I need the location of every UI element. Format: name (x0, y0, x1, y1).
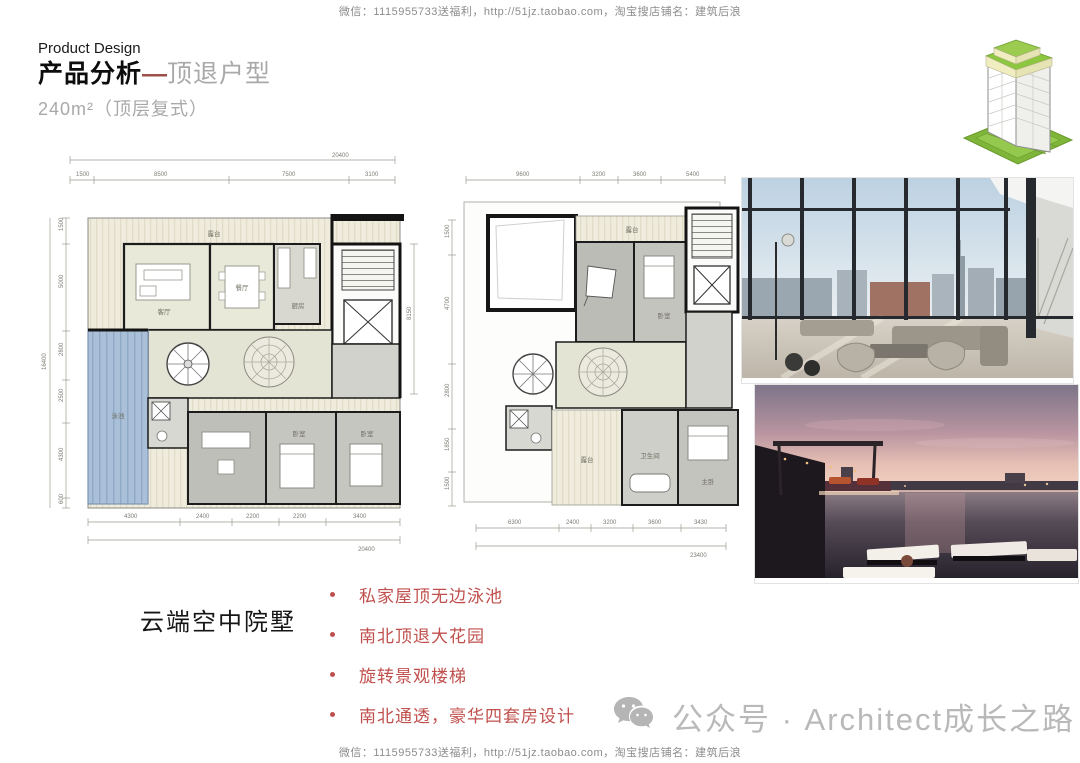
terrace-bottom: 露台 (552, 410, 622, 505)
hallway (332, 344, 400, 398)
svg-text:5400: 5400 (686, 172, 700, 178)
svg-text:1500: 1500 (76, 172, 90, 178)
feature-text: 南北通透，豪华四套房设计 (359, 702, 575, 727)
svg-text:4300: 4300 (124, 514, 138, 520)
svg-text:16400: 16400 (42, 353, 48, 370)
cloud (915, 438, 1075, 448)
svg-text:9600: 9600 (516, 172, 530, 178)
top-watermark: 微信：1115955733送福利，http://51jz.taobao.com，… (0, 3, 1080, 19)
svg-text:7500: 7500 (282, 172, 296, 178)
svg-text:2500: 2500 (59, 388, 65, 402)
plan-body: 露台 卧室 (464, 202, 738, 505)
title-sub: 顶退户型 (167, 60, 271, 88)
bedroom-upper: 卧室 (634, 242, 692, 342)
sky-reflection (905, 493, 965, 553)
dim-bottom: 6300 2400 3200 3600 3430 23400 (476, 520, 726, 559)
bedroom-b: 卧室 (336, 412, 400, 504)
penthouse-interior-photo (742, 178, 1073, 383)
floor-plan-lower: 20400 1500 8500 7500 3100 16400 1500 (36, 148, 428, 565)
floor-plan-upper: 9600 3200 3600 5400 1500 4700 2800 1850 … (436, 160, 746, 570)
feature-item: 南北通透，豪华四套房设计 (330, 702, 575, 727)
slide: 微信：1115955733送福利，http://51jz.taobao.com，… (0, 0, 1080, 763)
svg-text:卧室: 卧室 (293, 429, 307, 438)
cloud (805, 419, 945, 431)
bathroom (148, 398, 188, 448)
eyebrow-title: Product Design (38, 40, 271, 57)
svg-text:露台: 露台 (208, 229, 221, 238)
living-room: 客厅 (124, 244, 210, 330)
svg-text:1500: 1500 (445, 224, 451, 238)
dim-top: 20400 1500 8500 7500 3100 (70, 153, 395, 184)
dim-left: 16400 1500 5000 2800 2500 4300 600 (42, 217, 70, 508)
plan-body: 露台 客厅 餐厅 (88, 214, 404, 508)
building-3d-icon (958, 26, 1076, 183)
svg-text:客厅: 客厅 (158, 307, 172, 316)
svg-text:2800: 2800 (59, 342, 65, 356)
svg-text:餐厅: 餐厅 (236, 283, 250, 292)
slide-header: Product Design 产品分析—顶退户型 240m²（顶层复式） (38, 40, 271, 121)
svg-text:4300: 4300 (59, 447, 65, 461)
svg-text:卫生间: 卫生间 (640, 451, 660, 460)
rooftop-pool-photo (755, 385, 1078, 583)
svg-text:厨房: 厨房 (292, 301, 305, 310)
svg-text:1500: 1500 (445, 476, 451, 490)
dining-room: 餐厅 (210, 244, 274, 330)
svg-text:8150: 8150 (407, 306, 413, 320)
feature-item: 南北顶退大花园 (330, 622, 575, 647)
corridor (148, 330, 332, 398)
svg-text:3400: 3400 (353, 514, 367, 520)
title-main: 产品分析 (38, 60, 142, 88)
svg-text:泳池: 泳池 (112, 411, 126, 420)
svg-text:8500: 8500 (154, 172, 168, 178)
svg-text:3430: 3430 (694, 520, 708, 526)
area-subtitle: 240m²（顶层复式） (38, 95, 271, 121)
svg-text:卧室: 卧室 (658, 311, 672, 320)
svg-text:卧室: 卧室 (361, 429, 375, 438)
title-dash: — (142, 60, 167, 88)
svg-text:3600: 3600 (648, 520, 662, 526)
dim-bottom: 4300 2400 2200 2200 3400 20400 (88, 514, 400, 553)
svg-text:2400: 2400 (196, 514, 210, 520)
closet-hall (686, 312, 732, 408)
svg-text:5000: 5000 (59, 274, 65, 288)
svg-text:3200: 3200 (603, 520, 617, 526)
svg-text:3600: 3600 (633, 172, 647, 178)
brand-watermark: 公众号 · Architect成长之路 (612, 694, 1075, 739)
svg-text:4700: 4700 (445, 296, 451, 310)
svg-text:600: 600 (59, 493, 65, 504)
plant-pot (901, 555, 913, 567)
feature-text: 私家屋顶无边泳池 (359, 582, 503, 607)
wechat-icon (612, 695, 658, 738)
void-room (488, 216, 576, 310)
study-room (188, 412, 266, 504)
svg-text:20400: 20400 (358, 547, 375, 553)
svg-text:1500: 1500 (59, 217, 65, 231)
bathroom-master: 卫生间 (622, 410, 678, 505)
svg-text:20400: 20400 (332, 153, 349, 159)
page-title: 产品分析—顶退户型 (38, 61, 271, 89)
svg-text:2400: 2400 (566, 520, 580, 526)
dim-left: 1500 4700 2800 1850 1500 (445, 220, 456, 506)
pool: 泳池 (88, 330, 148, 504)
svg-text:主卧: 主卧 (702, 477, 716, 486)
feature-item: 私家屋顶无边泳池 (330, 582, 575, 607)
svg-text:露台: 露台 (626, 225, 639, 234)
bottom-watermark: 微信：1115955733送福利，http://51jz.taobao.com，… (0, 744, 1080, 760)
bullet-dot-icon (330, 632, 335, 637)
dim-top: 9600 3200 3600 5400 (466, 172, 725, 184)
bullet-dot-icon (330, 672, 335, 677)
piano-room (576, 242, 634, 342)
svg-text:2200: 2200 (246, 514, 260, 520)
svg-text:6300: 6300 (508, 520, 522, 526)
bullet-dot-icon (330, 712, 335, 717)
svg-text:2200: 2200 (293, 514, 307, 520)
tagline: 云端空中院墅 (140, 602, 296, 637)
feature-list: 私家屋顶无边泳池 南北顶退大花园 旋转景观楼梯 南北通透，豪华四套房设计 (330, 582, 575, 742)
feature-item: 旋转景观楼梯 (330, 662, 575, 687)
svg-text:1850: 1850 (445, 437, 451, 451)
terrace-top: 露台 (576, 216, 688, 242)
kitchen: 厨房 (274, 244, 320, 324)
svg-text:露台: 露台 (581, 455, 594, 464)
feature-text: 旋转景观楼梯 (359, 662, 467, 687)
bedroom-a: 卧室 (266, 412, 336, 504)
master-bedroom: 主卧 (678, 410, 738, 505)
dim-right: 8150 (407, 244, 418, 394)
bullet-dot-icon (330, 592, 335, 597)
feature-text: 南北顶退大花园 (359, 622, 485, 647)
svg-text:3200: 3200 (592, 172, 606, 178)
svg-text:2800: 2800 (445, 383, 451, 397)
svg-text:3100: 3100 (365, 172, 379, 178)
brand-text: 公众号 · Architect成长之路 (672, 694, 1075, 739)
bathroom-small (506, 406, 552, 450)
stair-core (686, 208, 738, 312)
svg-text:23400: 23400 (690, 553, 707, 559)
